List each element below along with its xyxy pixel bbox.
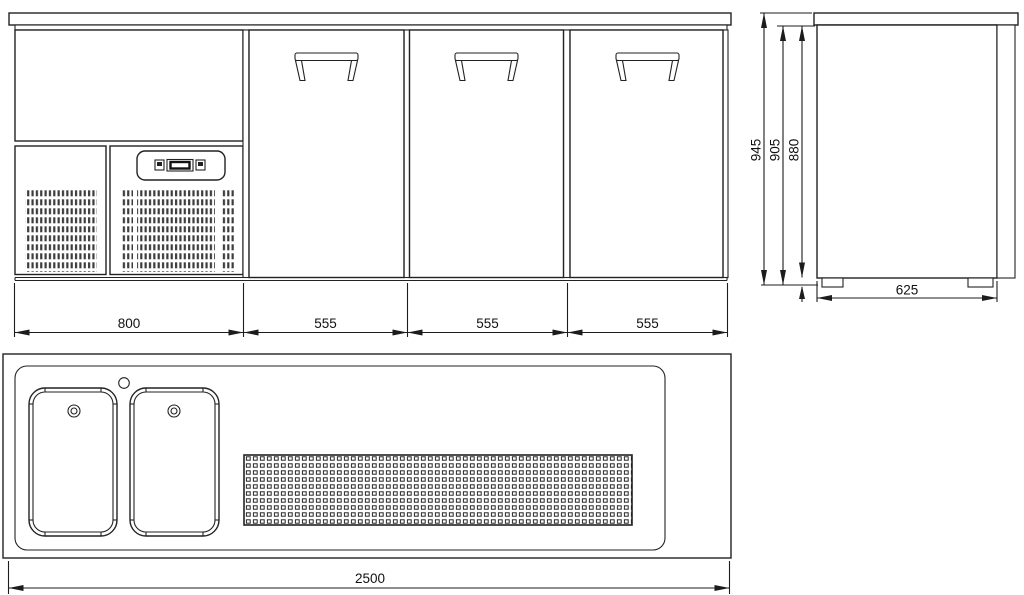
door-1 <box>249 30 404 278</box>
technical-drawing-canvas: 800 555 555 555 <box>0 0 1024 595</box>
divider-2 <box>404 30 410 278</box>
vent-grille-strip-3 <box>221 188 234 272</box>
dim-label-overall-width: 2500 <box>355 571 385 586</box>
plan-dimensions: 2500 <box>9 561 730 594</box>
divider-1 <box>243 30 249 278</box>
dim-label-depth: 625 <box>896 283 919 298</box>
side-elevation-view: 945 905 880 625 <box>749 13 1019 302</box>
sink-1 <box>29 388 117 536</box>
vent-grille-left <box>25 188 97 272</box>
dim-label-body-height: 880 <box>787 139 802 162</box>
dim-label-door-1-width: 555 <box>314 316 337 331</box>
dim-label-door-2-width: 555 <box>476 316 499 331</box>
front-elevation-view: 800 555 555 555 <box>9 13 731 337</box>
left-blank-panel <box>15 30 243 141</box>
front-dimensions: 800 555 555 555 <box>15 283 728 337</box>
divider-3 <box>564 30 571 278</box>
side-foot-front <box>822 278 843 287</box>
front-left-section <box>15 30 243 275</box>
door-3 <box>570 30 723 278</box>
control-panel <box>137 151 225 180</box>
dim-label-left-section-width: 800 <box>118 316 141 331</box>
front-doors <box>243 30 728 278</box>
display-screen <box>171 162 190 169</box>
dim-label-door-3-width: 555 <box>636 316 659 331</box>
sink-2 <box>130 388 219 536</box>
drawing-svg: 800 555 555 555 <box>0 0 1024 595</box>
front-top-rail <box>15 25 727 30</box>
drainer-perforated-area <box>244 455 632 525</box>
vent-grille-strip-1 <box>122 188 133 272</box>
control-button-right-mark <box>198 162 203 166</box>
front-countertop <box>9 13 731 25</box>
dim-label-overall-height: 945 <box>749 139 764 162</box>
dim-label-height-excl-counter: 905 <box>768 139 783 162</box>
tap-hole <box>119 378 130 389</box>
side-body <box>817 25 997 278</box>
door-2 <box>410 30 564 278</box>
side-countertop <box>814 13 1018 25</box>
front-base-band <box>15 278 727 281</box>
control-button-left-mark <box>157 162 162 166</box>
right-edge-post <box>723 30 728 278</box>
sink-2-drain-inner <box>171 408 177 414</box>
top-plan-view: 2500 <box>3 354 731 594</box>
side-foot-rear <box>968 278 993 287</box>
vent-grille-strip-2 <box>137 188 215 272</box>
sink-1-drain-inner <box>71 408 77 414</box>
side-back-panel <box>997 25 1015 278</box>
